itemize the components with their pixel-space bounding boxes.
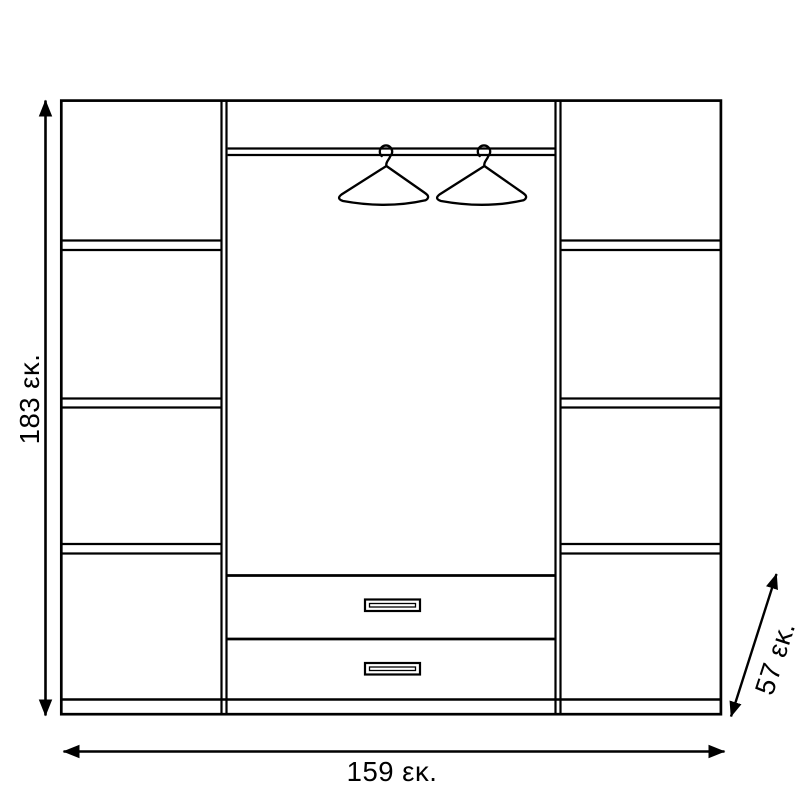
drawer-section [227,576,556,675]
right-divider-panel [556,101,561,714]
width-dimension-label: 159 εκ. [347,756,438,787]
wardrobe-diagram-page: 183 εκ. 159 εκ. 57 εκ. [0,0,800,800]
height-dimension-label: 183 εκ. [14,354,45,445]
drawer-handle [365,663,420,675]
drawer-handle [365,600,420,612]
left-column-shelves [62,241,221,554]
right-column-shelves [562,241,721,554]
depth-dimension-label: 57 εκ. [749,618,800,699]
left-divider-panel [222,101,227,714]
wardrobe-diagram: 183 εκ. 159 εκ. 57 εκ. [0,0,800,800]
